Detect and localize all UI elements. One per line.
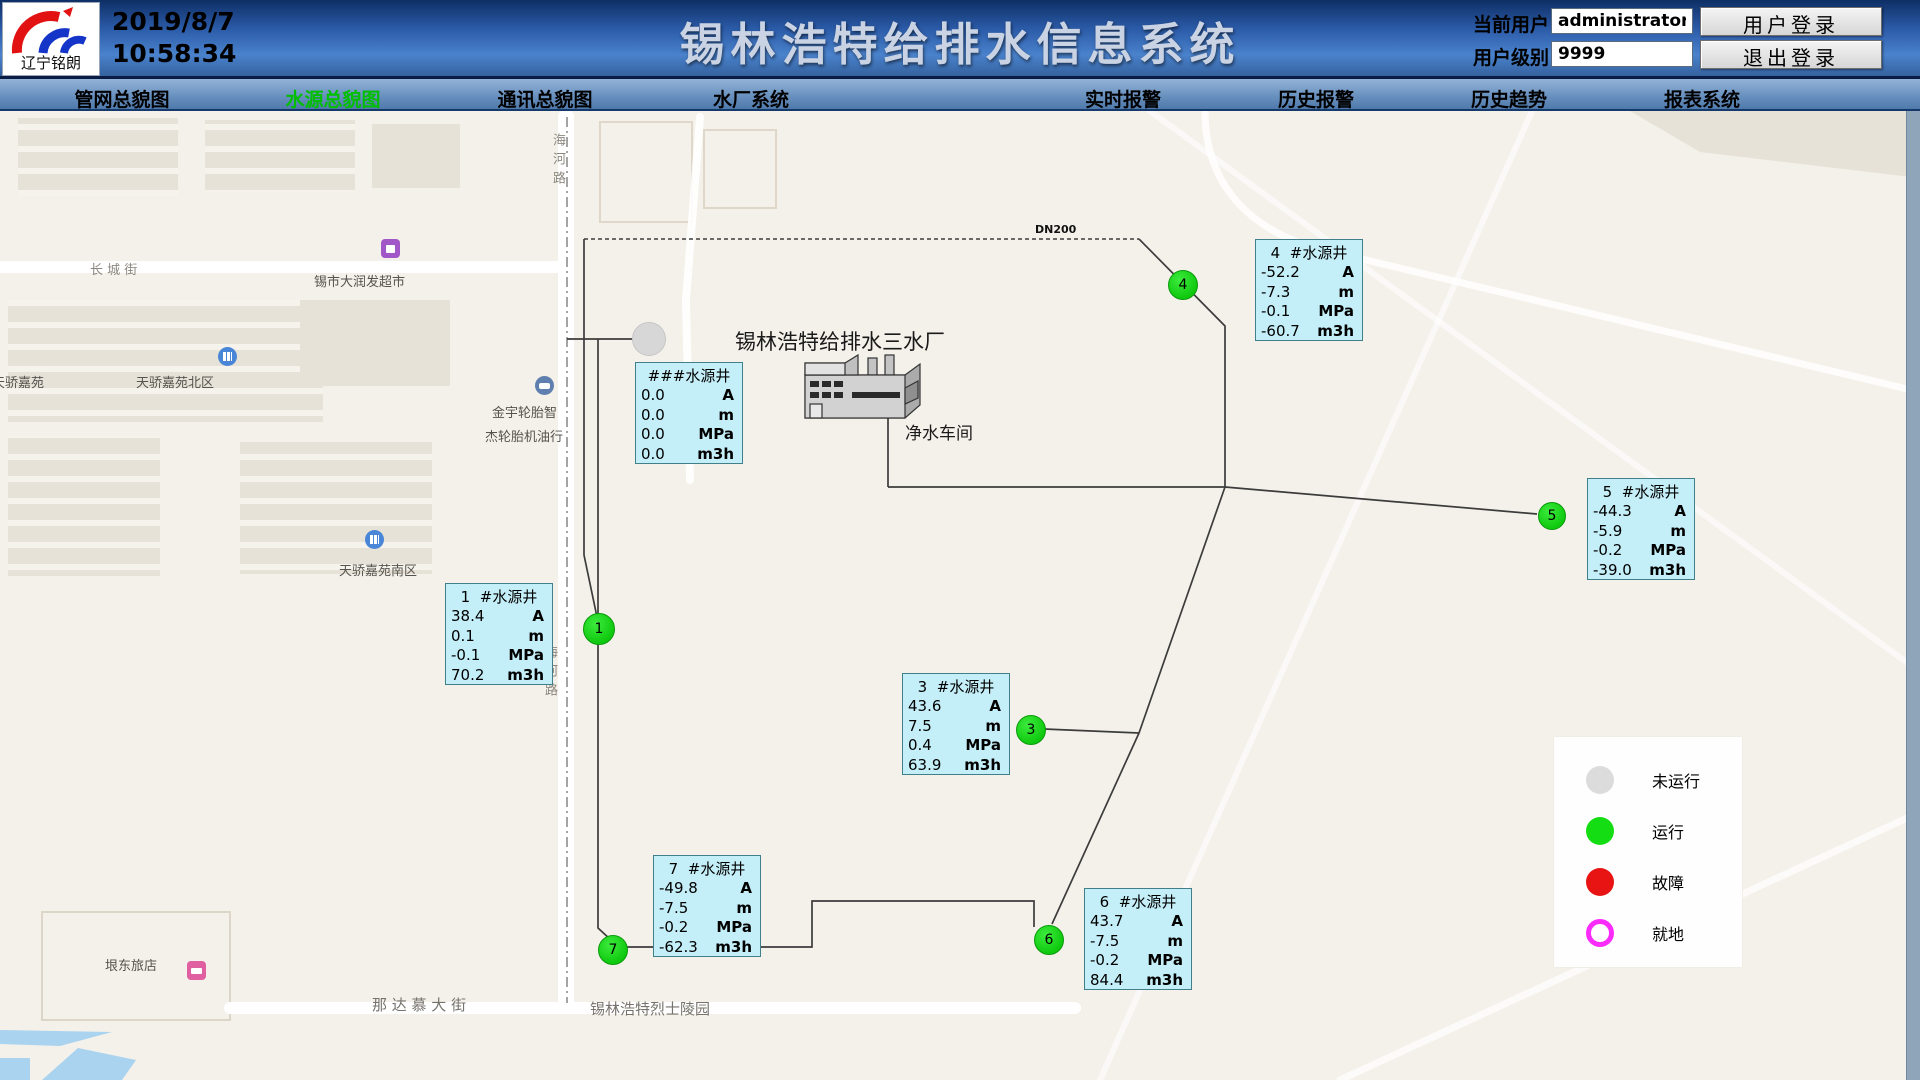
scada-window: DN200 辽宁铭朗: [0, 0, 1920, 1080]
legend-status-dot: [1586, 766, 1614, 794]
measurement-value: -62.3: [659, 938, 698, 958]
well-data-box-4[interactable]: 4 #水源井-52.2A-7.3m-0.1MPa-60.7m3h: [1255, 239, 1363, 341]
well-measurement-row: -0.1MPa: [446, 646, 552, 666]
measurement-value: -7.5: [1090, 932, 1119, 952]
nav-item-3[interactable]: 通讯总貌图: [497, 85, 592, 112]
well-measurement-row: 0.0MPa: [636, 425, 742, 445]
well-measurement-row: -7.5m: [654, 899, 760, 919]
residence-poi-icon: [365, 530, 384, 549]
well-measurement-row: 0.0A: [636, 386, 742, 406]
measurement-unit: MPa: [1650, 541, 1686, 561]
measurement-unit: MPa: [965, 736, 1001, 756]
measurement-value: 0.1: [451, 627, 475, 647]
residence-glyph: [370, 535, 379, 544]
well-measurement-row: -60.7m3h: [1256, 322, 1362, 342]
map-text-label: 天骄嘉苑南区: [339, 560, 417, 579]
measurement-value: -0.2: [659, 918, 688, 938]
measurement-value: 84.4: [1090, 971, 1123, 991]
nav-item-2[interactable]: 水源总貌图: [285, 85, 380, 112]
measurement-value: 38.4: [451, 607, 484, 627]
title-bar: 辽宁铭朗 2019/8/7 10:58:34 锡林浩特给排水信息系统 当前用户 …: [0, 0, 1920, 77]
map-text-label: 金宇轮胎智: [492, 402, 557, 421]
logout-button[interactable]: 退出登录: [1700, 40, 1882, 69]
measurement-unit: A: [1171, 912, 1183, 932]
residence-poi-icon: [218, 347, 237, 366]
workshop-label: 净水车间: [905, 419, 973, 444]
plant-title: 锡林浩特给排水三水厂: [735, 326, 945, 356]
legend-status-label: 就地: [1652, 921, 1684, 945]
well-measurement-row: 43.6A: [903, 697, 1009, 717]
current-user-label: 当前用户: [1473, 10, 1549, 37]
measurement-unit: m3h: [964, 756, 1001, 776]
measurement-unit: m3h: [1317, 322, 1354, 342]
nav-item-8[interactable]: 报表系统: [1664, 85, 1740, 112]
hotel-glyph: [191, 968, 202, 974]
well-measurement-row: 7.5m: [903, 717, 1009, 737]
measurement-unit: m: [1670, 522, 1686, 542]
measurement-unit: m: [1167, 932, 1183, 952]
residence-glyph: [223, 352, 232, 361]
well-box-title: 6 #水源井: [1085, 891, 1191, 912]
legend-status-label: 未运行: [1652, 768, 1700, 792]
well-box-title: 4 #水源井: [1256, 242, 1362, 263]
well-box-title: 1 #水源井: [446, 586, 552, 607]
measurement-unit: m: [1338, 283, 1354, 303]
map-text-label: 海河路: [548, 133, 567, 190]
measurement-value: -52.2: [1261, 263, 1300, 283]
measurement-unit: m3h: [507, 666, 544, 686]
measurement-unit: MPa: [1147, 951, 1183, 971]
measurement-value: 70.2: [451, 666, 484, 686]
map-text-label: 锡市大润发超市: [314, 271, 405, 290]
measurement-value: 0.0: [641, 406, 665, 426]
well-measurement-row: 84.4m3h: [1085, 971, 1191, 991]
car-glyph: [539, 383, 550, 389]
measurement-unit: A: [1674, 502, 1686, 522]
map-text-label: 垠东旅店: [105, 955, 157, 974]
measurement-unit: A: [532, 607, 544, 627]
hotel-poi-icon: [187, 961, 206, 980]
well-measurement-row: -62.3m3h: [654, 938, 760, 958]
well-measurement-row: -0.2MPa: [1588, 541, 1694, 561]
user-level-field[interactable]: [1551, 41, 1693, 67]
measurement-value: -39.0: [1593, 561, 1632, 581]
shopping-glyph: [386, 245, 395, 253]
measurement-unit: MPa: [508, 646, 544, 666]
measurement-unit: m: [985, 717, 1001, 737]
current-user-field[interactable]: [1551, 8, 1693, 34]
legend-row-2: 运行: [1554, 816, 1742, 846]
map-scrollbar[interactable]: [1906, 111, 1920, 1080]
well-data-box-7[interactable]: 7 #水源井-49.8A-7.5m-0.2MPa-62.3m3h: [653, 855, 761, 957]
well-box-title: 7 #水源井: [654, 858, 760, 879]
measurement-value: 43.7: [1090, 912, 1123, 932]
well-measurement-row: 0.0m: [636, 406, 742, 426]
car-poi-icon: [535, 376, 554, 395]
shopping-poi-icon: [381, 239, 400, 258]
well-measurement-row: -39.0m3h: [1588, 561, 1694, 581]
nav-item-1[interactable]: 管网总貌图: [74, 85, 169, 112]
well-marker-idle[interactable]: [632, 322, 666, 356]
measurement-unit: m3h: [1146, 971, 1183, 991]
user-level-label: 用户级别: [1473, 43, 1549, 70]
legend-row-3: 故障: [1554, 867, 1742, 897]
legend-status-dot: [1586, 817, 1614, 845]
map-text-label: 天骄嘉苑: [0, 372, 44, 391]
well-data-box-5[interactable]: 5 #水源井-44.3A-5.9m-0.2MPa-39.0m3h: [1587, 478, 1695, 580]
well-measurement-row: 63.9m3h: [903, 756, 1009, 776]
well-measurement-row: -0.2MPa: [654, 918, 760, 938]
legend-status-dot: [1586, 868, 1614, 896]
legend-status-label: 运行: [1652, 819, 1684, 843]
well-measurement-row: 70.2m3h: [446, 666, 552, 686]
well-data-box-3[interactable]: 3 #水源井43.6A7.5m0.4MPa63.9m3h: [902, 673, 1010, 775]
measurement-value: 0.0: [641, 425, 665, 445]
measurement-value: 7.5: [908, 717, 932, 737]
measurement-unit: m3h: [1649, 561, 1686, 581]
legend-row-4: 就地: [1554, 918, 1742, 948]
nav-bar: 管网总貌图水源总貌图通讯总貌图水厂系统实时报警历史报警历史趋势报表系统: [0, 76, 1920, 111]
well-marker-5[interactable]: 5: [1538, 502, 1566, 530]
well-data-box-1[interactable]: ###水源井0.0A0.0m0.0MPa0.0m3h: [635, 362, 743, 464]
measurement-unit: m3h: [697, 445, 734, 465]
nav-item-6[interactable]: 历史报警: [1278, 85, 1354, 112]
measurement-value: -7.3: [1261, 283, 1290, 303]
map-text-label: 天骄嘉苑北区: [136, 372, 214, 391]
map-text-label: 那 达 慕 大 街: [372, 994, 466, 1015]
well-measurement-row: 0.0m3h: [636, 445, 742, 465]
nav-item-5[interactable]: 实时报警: [1085, 85, 1161, 112]
measurement-value: -0.2: [1090, 951, 1119, 971]
measurement-unit: MPa: [716, 918, 752, 938]
well-measurement-row: 38.4A: [446, 607, 552, 627]
pipe-diameter-label: DN200: [1035, 223, 1077, 236]
well-box-title: ###水源井: [636, 365, 742, 386]
well-marker-4[interactable]: 4: [1168, 270, 1198, 300]
well-measurement-row: -0.2MPa: [1085, 951, 1191, 971]
measurement-value: -0.1: [451, 646, 480, 666]
measurement-value: 0.0: [641, 386, 665, 406]
well-measurement-row: -52.2A: [1256, 263, 1362, 283]
login-button[interactable]: 用户登录: [1700, 7, 1882, 36]
measurement-value: -7.5: [659, 899, 688, 919]
well-measurement-row: -7.3m: [1256, 283, 1362, 303]
well-measurement-row: 0.4MPa: [903, 736, 1009, 756]
well-measurement-row: -5.9m: [1588, 522, 1694, 542]
legend-row-1: 未运行: [1554, 765, 1742, 795]
measurement-unit: A: [740, 879, 752, 899]
legend-status-dot: [1586, 919, 1614, 947]
well-measurement-row: 0.1m: [446, 627, 552, 647]
measurement-unit: m: [718, 406, 734, 426]
measurement-unit: MPa: [698, 425, 734, 445]
measurement-value: -60.7: [1261, 322, 1300, 342]
well-measurement-row: -0.1MPa: [1256, 302, 1362, 322]
well-measurement-row: -49.8A: [654, 879, 760, 899]
measurement-value: 0.4: [908, 736, 932, 756]
status-legend: 未运行运行故障就地: [1554, 737, 1742, 967]
well-measurement-row: -7.5m: [1085, 932, 1191, 952]
well-measurement-row: -44.3A: [1588, 502, 1694, 522]
well-box-title: 5 #水源井: [1588, 481, 1694, 502]
measurement-unit: m: [528, 627, 544, 647]
well-box-title: 3 #水源井: [903, 676, 1009, 697]
measurement-unit: m3h: [715, 938, 752, 958]
measurement-unit: A: [1342, 263, 1354, 283]
well-data-box-6[interactable]: 6 #水源井43.7A-7.5m-0.2MPa84.4m3h: [1084, 888, 1192, 990]
well-marker-1[interactable]: 1: [583, 613, 615, 645]
measurement-value: -0.1: [1261, 302, 1290, 322]
measurement-value: 43.6: [908, 697, 941, 717]
measurement-unit: A: [722, 386, 734, 406]
measurement-value: 63.9: [908, 756, 941, 776]
map-text-label: 杰轮胎机油行: [485, 426, 563, 445]
measurement-unit: m: [736, 899, 752, 919]
map-text-label: 长 城 街: [90, 259, 137, 278]
measurement-unit: A: [989, 697, 1001, 717]
measurement-unit: MPa: [1318, 302, 1354, 322]
well-measurement-row: 43.7A: [1085, 912, 1191, 932]
measurement-value: -0.2: [1593, 541, 1622, 561]
well-marker-7[interactable]: 7: [598, 935, 628, 965]
measurement-value: -49.8: [659, 879, 698, 899]
legend-status-label: 故障: [1652, 870, 1684, 894]
measurement-value: 0.0: [641, 445, 665, 465]
nav-item-4[interactable]: 水厂系统: [713, 85, 789, 112]
well-marker-6[interactable]: 6: [1034, 925, 1064, 955]
nav-item-7[interactable]: 历史趋势: [1471, 85, 1547, 112]
well-marker-3[interactable]: 3: [1016, 715, 1046, 745]
map-text-label: 锡林浩特烈士陵园: [590, 998, 710, 1019]
measurement-value: -44.3: [1593, 502, 1632, 522]
well-data-box-2[interactable]: 1 #水源井38.4A0.1m-0.1MPa70.2m3h: [445, 583, 553, 685]
measurement-value: -5.9: [1593, 522, 1622, 542]
